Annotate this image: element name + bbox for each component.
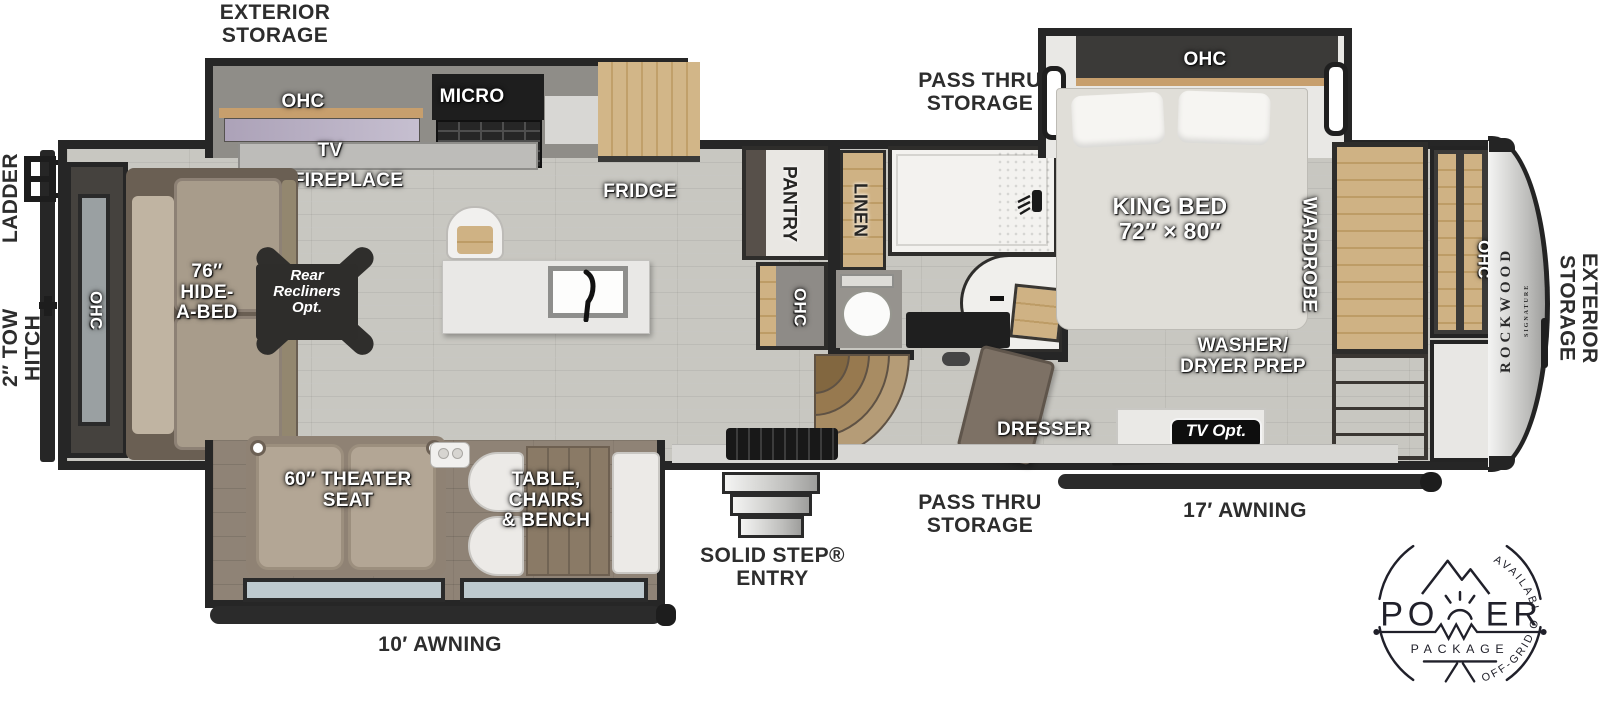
front-bench (1430, 340, 1494, 462)
tv-label: TV (290, 141, 370, 162)
pantry-label: PANTRY (778, 156, 799, 252)
desk-stool (942, 352, 970, 366)
bed-ohc-label: OHC (1145, 50, 1265, 71)
rv-floorplan-diagram: LADDER 2″ TOW HITCH OHC MICRO EXTERIOR S… (0, 0, 1600, 712)
island-chair-seat (457, 226, 493, 254)
theater-seat-label: 60″ THEATER SEAT (278, 470, 418, 511)
entry-step (722, 472, 820, 494)
rear-awning-end (656, 604, 676, 626)
tv-fireplace-wall (238, 142, 538, 170)
pillow (1177, 90, 1271, 145)
shower-head-icon (1014, 188, 1046, 222)
desk (906, 312, 1010, 348)
dresser-label: DRESSER (982, 420, 1106, 441)
kitchen-ohc-glass (224, 118, 420, 142)
exterior-storage-front-label: EXTERIOR STORAGE (1550, 224, 1600, 392)
washer-dryer-label: WASHER/ DRYER PREP (1162, 336, 1324, 377)
brand-sub: SIGNATURE (1524, 283, 1530, 336)
vanity-faucet (990, 296, 1004, 301)
mountains-icon (1422, 561, 1489, 594)
badge-power-left: PO (1380, 595, 1439, 633)
tv-opt-label: TV Opt. (1170, 422, 1262, 440)
badge-package-text: PACKAGE (1411, 642, 1510, 656)
line-dot (1373, 629, 1379, 635)
slide-window (460, 578, 648, 602)
king-bed-label: KING BED 72″ × 80″ (1090, 194, 1250, 244)
toilet-bowl (842, 290, 892, 338)
pantry-side (746, 150, 766, 256)
toilet-tank (840, 274, 894, 288)
bedroom-window-icon (1324, 62, 1348, 136)
pass-thru-bottom-label: PASS THRU STORAGE (905, 492, 1055, 537)
front-ohc-shelf (1438, 154, 1456, 330)
tray-cup (452, 448, 463, 459)
recliners-opt-label: Rear Recliners Opt. (256, 268, 358, 317)
cap-corner (1489, 138, 1515, 152)
micro-label: MICRO (412, 87, 532, 108)
solid-step-label: SOLID STEP® ENTRY (690, 545, 855, 590)
rear-ohc-label: OHC (86, 272, 104, 348)
cap-handle (1541, 318, 1548, 368)
wardrobe-label: WARDROBE (1298, 180, 1319, 330)
bed-ohc-wood (1076, 78, 1338, 86)
awning-17-label: 17′ AWNING (1160, 500, 1330, 523)
front-awning-end (1420, 472, 1442, 492)
line-dot (1541, 629, 1547, 635)
pantry-ohc-label: OHC (790, 274, 808, 340)
outside-griddle (726, 428, 838, 460)
wardrobe-cabinet (1332, 142, 1428, 354)
pantry-ohc-side (760, 266, 776, 346)
rockwood-logo: ROCKWOOD SIGNATURE (1496, 228, 1538, 392)
entry-step (730, 494, 812, 516)
power-package-badge: AVAILABLE WITH PO ER PACKAGE OFF-GRID OP… (1365, 518, 1555, 708)
table-group-label: TABLE, CHAIRS & BENCH (490, 470, 602, 532)
awning-10-label: 10′ AWNING (355, 634, 525, 657)
fridge-cabinet (598, 62, 700, 162)
front-awning-roller (1058, 474, 1436, 489)
entry-step (738, 516, 804, 538)
dining-bench (612, 452, 660, 574)
pass-thru-top-label: PASS THRU STORAGE (905, 70, 1055, 115)
kitchen-ohc-label: OHC (253, 92, 353, 113)
cap-corner (1489, 456, 1515, 470)
hide-a-bed-label: 76″ HIDE- A-BED (152, 262, 262, 324)
exterior-storage-top-label: EXTERIOR STORAGE (200, 2, 350, 47)
tow-hitch-label: 2″ TOW HITCH (0, 268, 52, 428)
fridge-label: FRIDGE (580, 182, 700, 203)
linen-label: LINEN (850, 158, 869, 262)
rear-awning-roller (210, 606, 662, 624)
slide-window (243, 578, 445, 602)
sun-icon (1446, 592, 1475, 619)
pillow (1071, 92, 1166, 149)
tray-cup (438, 448, 449, 459)
ladder-label: LADDER (0, 118, 28, 278)
kitchen-counter (545, 96, 600, 144)
serving-tray (430, 442, 470, 468)
brand-name: ROCKWOOD (1498, 247, 1514, 373)
faucet-icon (578, 268, 604, 322)
cupholder-icon (250, 440, 266, 456)
